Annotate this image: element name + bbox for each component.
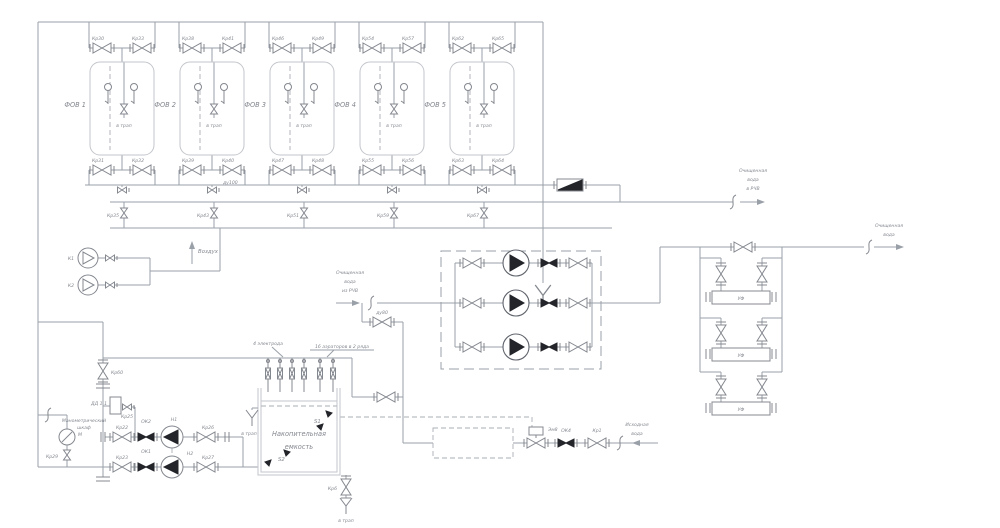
valve-icon [566, 342, 590, 352]
valve-icon [194, 432, 218, 442]
sample-tap-icon [208, 187, 220, 193]
stream-label: Очищенная [336, 270, 364, 276]
stream-label: вода [747, 178, 759, 183]
filter-name: ФОВ 4 [334, 101, 356, 109]
valve-bottom-left [360, 165, 384, 175]
valve-icon [585, 438, 609, 448]
drain-note: в трап [206, 124, 222, 129]
valve-label: Кр62 [452, 36, 464, 42]
valve-label: Кр57 [402, 36, 414, 42]
drain-valve-icon [121, 208, 128, 218]
pump-label: Н1 [171, 417, 177, 423]
stream-label: вода [344, 280, 356, 285]
valve-label: Кр63 [452, 158, 464, 164]
valve-label: Кр40 [222, 158, 234, 164]
valve-bottom-left [450, 165, 474, 175]
filter-vessel [360, 62, 424, 155]
drain-note: в трап [296, 124, 312, 129]
valve-label: Кр41 [222, 36, 234, 42]
stream-label: Исходная [625, 422, 648, 428]
pump-icon [503, 250, 529, 276]
filter-unit-4: ФОВ 4 Кр54 Кр57 Кр55 Кр56 Кр59 в трап [334, 22, 425, 228]
pipe-feed-line [103, 303, 658, 443]
drain-valve-icon [301, 104, 308, 114]
valve-icon [757, 322, 767, 344]
flow-arrow-icon [632, 440, 640, 446]
filter-unit-2: ФОВ 2 Кр38 Кр41 Кр39 Кр40 ду100 Кр43 в т… [154, 22, 245, 228]
valve-icon [716, 322, 726, 344]
transfer-unit: Кр60 ДД 1.1 Кр25 Манометрический шкаф М … [45, 360, 229, 481]
pipe-pump-station [336, 247, 660, 347]
valve-icon [566, 298, 590, 308]
flange-icon [706, 349, 710, 359]
meter-unit-box [433, 428, 513, 458]
compressor-icon [78, 248, 98, 268]
compressor-label: К1 [68, 256, 74, 262]
valve-label: ОК1 [141, 449, 151, 455]
pump-icon [161, 456, 183, 478]
gauge-valve-icon [64, 450, 71, 460]
storage-tank: Накопительная емкость 4 электрода 16 аэр… [241, 341, 374, 524]
electrode-icon [302, 358, 307, 392]
valve-label: Кр6 [328, 486, 337, 492]
valve-bottom-right [310, 165, 334, 175]
valve-icon [110, 462, 134, 472]
cabinet-label: шкаф [77, 425, 91, 431]
overflow-note: в трап [241, 432, 257, 437]
valve-icon [460, 258, 484, 268]
compressor-icon [78, 275, 98, 295]
flow-arrow-icon [896, 244, 904, 250]
valve-label: Кр59 [377, 213, 389, 219]
valve-label: Кр27 [202, 455, 214, 461]
valve-label: Кр46 [272, 36, 284, 42]
valve-bottom-left [180, 165, 204, 175]
valve-top-left [180, 43, 204, 53]
valve-label: Кр26 [202, 425, 214, 431]
check-valve-icon [538, 343, 560, 351]
valve-top-left [90, 43, 114, 53]
filter-name: ФОВ 1 [64, 101, 86, 109]
pressure-gauge-icon [401, 84, 408, 105]
flange-icon [772, 403, 776, 413]
signal-level-control [340, 417, 532, 427]
tank-name: Накопительная [272, 430, 326, 438]
valve-bottom-right [130, 165, 154, 175]
valve-label: Кр22 [116, 425, 128, 431]
valve-label: Кр31 [92, 158, 104, 164]
valve-icon [460, 342, 484, 352]
check-valve-icon [555, 439, 577, 447]
pipe-dn-label: ду80 [375, 310, 388, 316]
filter-unit-1: ФОВ 1 Кр30 Кр33 Кр31 Кр32 Кр35 в трап [64, 22, 155, 228]
pressure-gauge-icon [465, 84, 472, 105]
solenoid-valve-icon [524, 438, 548, 448]
valve-label: Кр43 [197, 213, 209, 219]
pressure-gauge-icon [311, 84, 318, 105]
pressure-gauge-icon [221, 84, 228, 105]
valve-top-right [310, 43, 334, 53]
label-to-rchv: Очищенная вода в РЧВ [739, 168, 767, 192]
sample-tap-icon [388, 187, 400, 193]
cabinet-label: Манометрический [62, 418, 106, 424]
drain-valve-icon [211, 208, 218, 218]
valve-label: Кр55 [362, 158, 374, 164]
valve-label: Эм8 [547, 427, 558, 433]
filter-vessel [450, 62, 514, 155]
pump-icon [503, 334, 529, 360]
bypass-valve-icon [370, 317, 394, 327]
valve-bottom-right [400, 165, 424, 175]
pump-station: Очищенная вода из РЧВ [336, 250, 601, 369]
valve-label: Кр32 [132, 158, 144, 164]
aerator-icon [318, 358, 323, 392]
flange-icon [706, 403, 710, 413]
pressure-sensor [110, 397, 121, 414]
stream-label: в РЧВ [746, 186, 759, 192]
electrodes-note: 4 электрода [253, 341, 283, 347]
sensor-arrow-icon [265, 460, 271, 466]
pressure-gauge-icon [491, 84, 498, 105]
valve-top-left [270, 43, 294, 53]
check-valve-icon [135, 433, 157, 441]
valve-icon [566, 258, 590, 268]
pump-icon [161, 426, 183, 448]
uv-label: УФ [738, 296, 745, 302]
uv-label: УФ [738, 407, 745, 413]
drain-funnel-icon [340, 498, 352, 514]
overflow-pipe [252, 408, 258, 410]
overflow-funnel-icon [246, 410, 258, 426]
valve-label: Кр33 [132, 36, 144, 42]
check-valve-icon [135, 463, 157, 471]
valve-icon [194, 462, 218, 472]
valve-bottom-left [90, 165, 114, 175]
valve-label: Кр47 [272, 158, 284, 164]
electrode-icon [278, 358, 283, 392]
electrode-icon [290, 358, 295, 392]
drain-note: в трап [338, 519, 354, 524]
filter-name: ФОВ 5 [424, 101, 446, 109]
valve-label: Кр56 [402, 158, 414, 164]
pressure-gauge-icon [375, 84, 382, 105]
drain-valve-icon [391, 104, 398, 114]
drain-note: в трап [116, 124, 132, 129]
flow-arrow-icon [757, 199, 765, 205]
drain-valve-icon [391, 208, 398, 218]
check-valve-icon [538, 259, 560, 267]
filter-unit-5: ФОВ 5 Кр62 Кр65 Кр63 Кр64 Кр67 в трап [424, 22, 515, 228]
valve-top-right [400, 43, 424, 53]
filter-vessel [90, 62, 154, 155]
aerators-note: 16 аэраторов в 2 ряда [315, 344, 369, 350]
valve-label: Кр1 [592, 428, 601, 434]
valve-label: Кр29 [46, 454, 58, 460]
process-diagram: ФОВ 1 Кр30 Кр33 Кр31 Кр32 Кр35 в трап ФО… [0, 0, 1000, 528]
filter-name: ФОВ 3 [244, 101, 266, 109]
valve-label: Кр65 [492, 36, 504, 42]
check-valve-icon [538, 299, 560, 307]
valve-icon [757, 376, 767, 398]
compressor-label: К2 [68, 283, 74, 289]
pipe-break-icon [866, 240, 872, 254]
valve-label: Кр67 [467, 213, 479, 219]
tank-name: емкость [285, 443, 314, 451]
air-label: Воздух [198, 249, 219, 255]
air-compressors: К1 К2 Воздух [68, 241, 219, 295]
valve-label: Кр51 [287, 213, 299, 219]
valve-label: Кр30 [92, 36, 104, 42]
bypass-valve-icon [731, 242, 755, 252]
valve-label: Кр35 [107, 213, 119, 219]
sample-tap-icon [478, 187, 490, 193]
stream-label: вода [631, 432, 643, 437]
pipe-top-header [38, 22, 543, 283]
drain-valve-icon [211, 104, 218, 114]
filter-unit-3: ФОВ 3 Кр46 Кр49 Кр47 Кр48 Кр51 в трап [244, 22, 335, 228]
valve-label: Кр23 [116, 455, 128, 461]
drain-valve-icon [301, 208, 308, 218]
filter-vessel [180, 62, 244, 155]
pipe-bottom-headers [85, 185, 733, 228]
level-sensor-bottom: S2 [278, 457, 285, 463]
flange-icon [772, 292, 776, 302]
valve-label: Кр48 [312, 158, 324, 164]
pipe-dn-label: ду100 [222, 180, 238, 186]
feed-line: Исходная вода Кр1 ОК4 Эм8 ду80 [370, 310, 649, 458]
blind-flange-icon [96, 477, 110, 481]
pump-label: Н2 [187, 451, 193, 457]
diagram-page: ФОВ 1 Кр30 Кр33 Кр31 Кр32 Кр35 в трап ФО… [0, 0, 1000, 528]
sample-tap-icon [298, 187, 310, 193]
stream-label: Очищенная [875, 223, 903, 229]
valve-top-left [360, 43, 384, 53]
drain-valve-icon [481, 208, 488, 218]
aerator-icon [331, 358, 336, 392]
drain-note: в трап [386, 124, 402, 129]
filter-vessel [270, 62, 334, 155]
valve-label: Кр54 [362, 36, 374, 42]
valve-bottom-right [490, 165, 514, 175]
drain-valve-icon [121, 104, 128, 114]
valve-top-right [220, 43, 244, 53]
valve-label: Кр39 [182, 158, 194, 164]
pipe-uv-rack [660, 247, 899, 402]
flange-icon [772, 349, 776, 359]
valve-icon [716, 376, 726, 398]
valve-top-right [130, 43, 154, 53]
valve-icon [757, 263, 767, 285]
sample-tap-icon [118, 187, 130, 193]
uv-label: УФ [738, 353, 745, 359]
gauge-label: М [78, 432, 82, 438]
flange-icon [706, 292, 710, 302]
valve-label: ОК4 [561, 428, 571, 434]
valve-icon [110, 432, 134, 442]
valve-label: Кр49 [312, 36, 324, 42]
solenoid-actuator [529, 427, 543, 435]
electrode-icon [266, 358, 271, 392]
stream-label: Очищенная [739, 168, 767, 174]
drain-valve-icon [481, 104, 488, 114]
valve-icon [716, 263, 726, 285]
pressure-gauge-icon [285, 84, 292, 105]
drain-valve-icon [341, 476, 351, 498]
backwash-check-valve [554, 179, 586, 191]
stream-label: из РЧВ [342, 288, 358, 294]
valve-label: Кр60 [111, 370, 123, 376]
valve-label: ОК2 [141, 419, 151, 425]
uv-rack: УФ УФ УФ Очищенная вода [706, 223, 904, 415]
air-arrow-icon [189, 241, 195, 249]
pump-icon [503, 290, 529, 316]
valve-label: Кр25 [121, 414, 133, 420]
aerator-valve-icon [374, 392, 398, 402]
valve-bottom-right [220, 165, 244, 175]
valve-top-right [490, 43, 514, 53]
level-sensor-top: S1 [314, 419, 321, 425]
riser-valve-icon [98, 360, 108, 382]
valve-top-left [450, 43, 474, 53]
valve-label: Кр38 [182, 36, 194, 42]
stream-label: вода [883, 233, 895, 238]
sensor-label: ДД 1.1 [90, 401, 107, 407]
valve-bottom-left [270, 165, 294, 175]
valve-label: Кр64 [492, 158, 504, 164]
pipe-break-icon [368, 296, 374, 310]
pressure-gauge-icon [131, 84, 138, 105]
sensor-arrow-icon [326, 411, 332, 417]
valve-icon [460, 298, 484, 308]
pipe-air-lines [98, 228, 220, 285]
flow-arrow-icon [352, 300, 360, 306]
filter-name: ФОВ 2 [154, 101, 176, 109]
drain-note: в трап [476, 124, 492, 129]
